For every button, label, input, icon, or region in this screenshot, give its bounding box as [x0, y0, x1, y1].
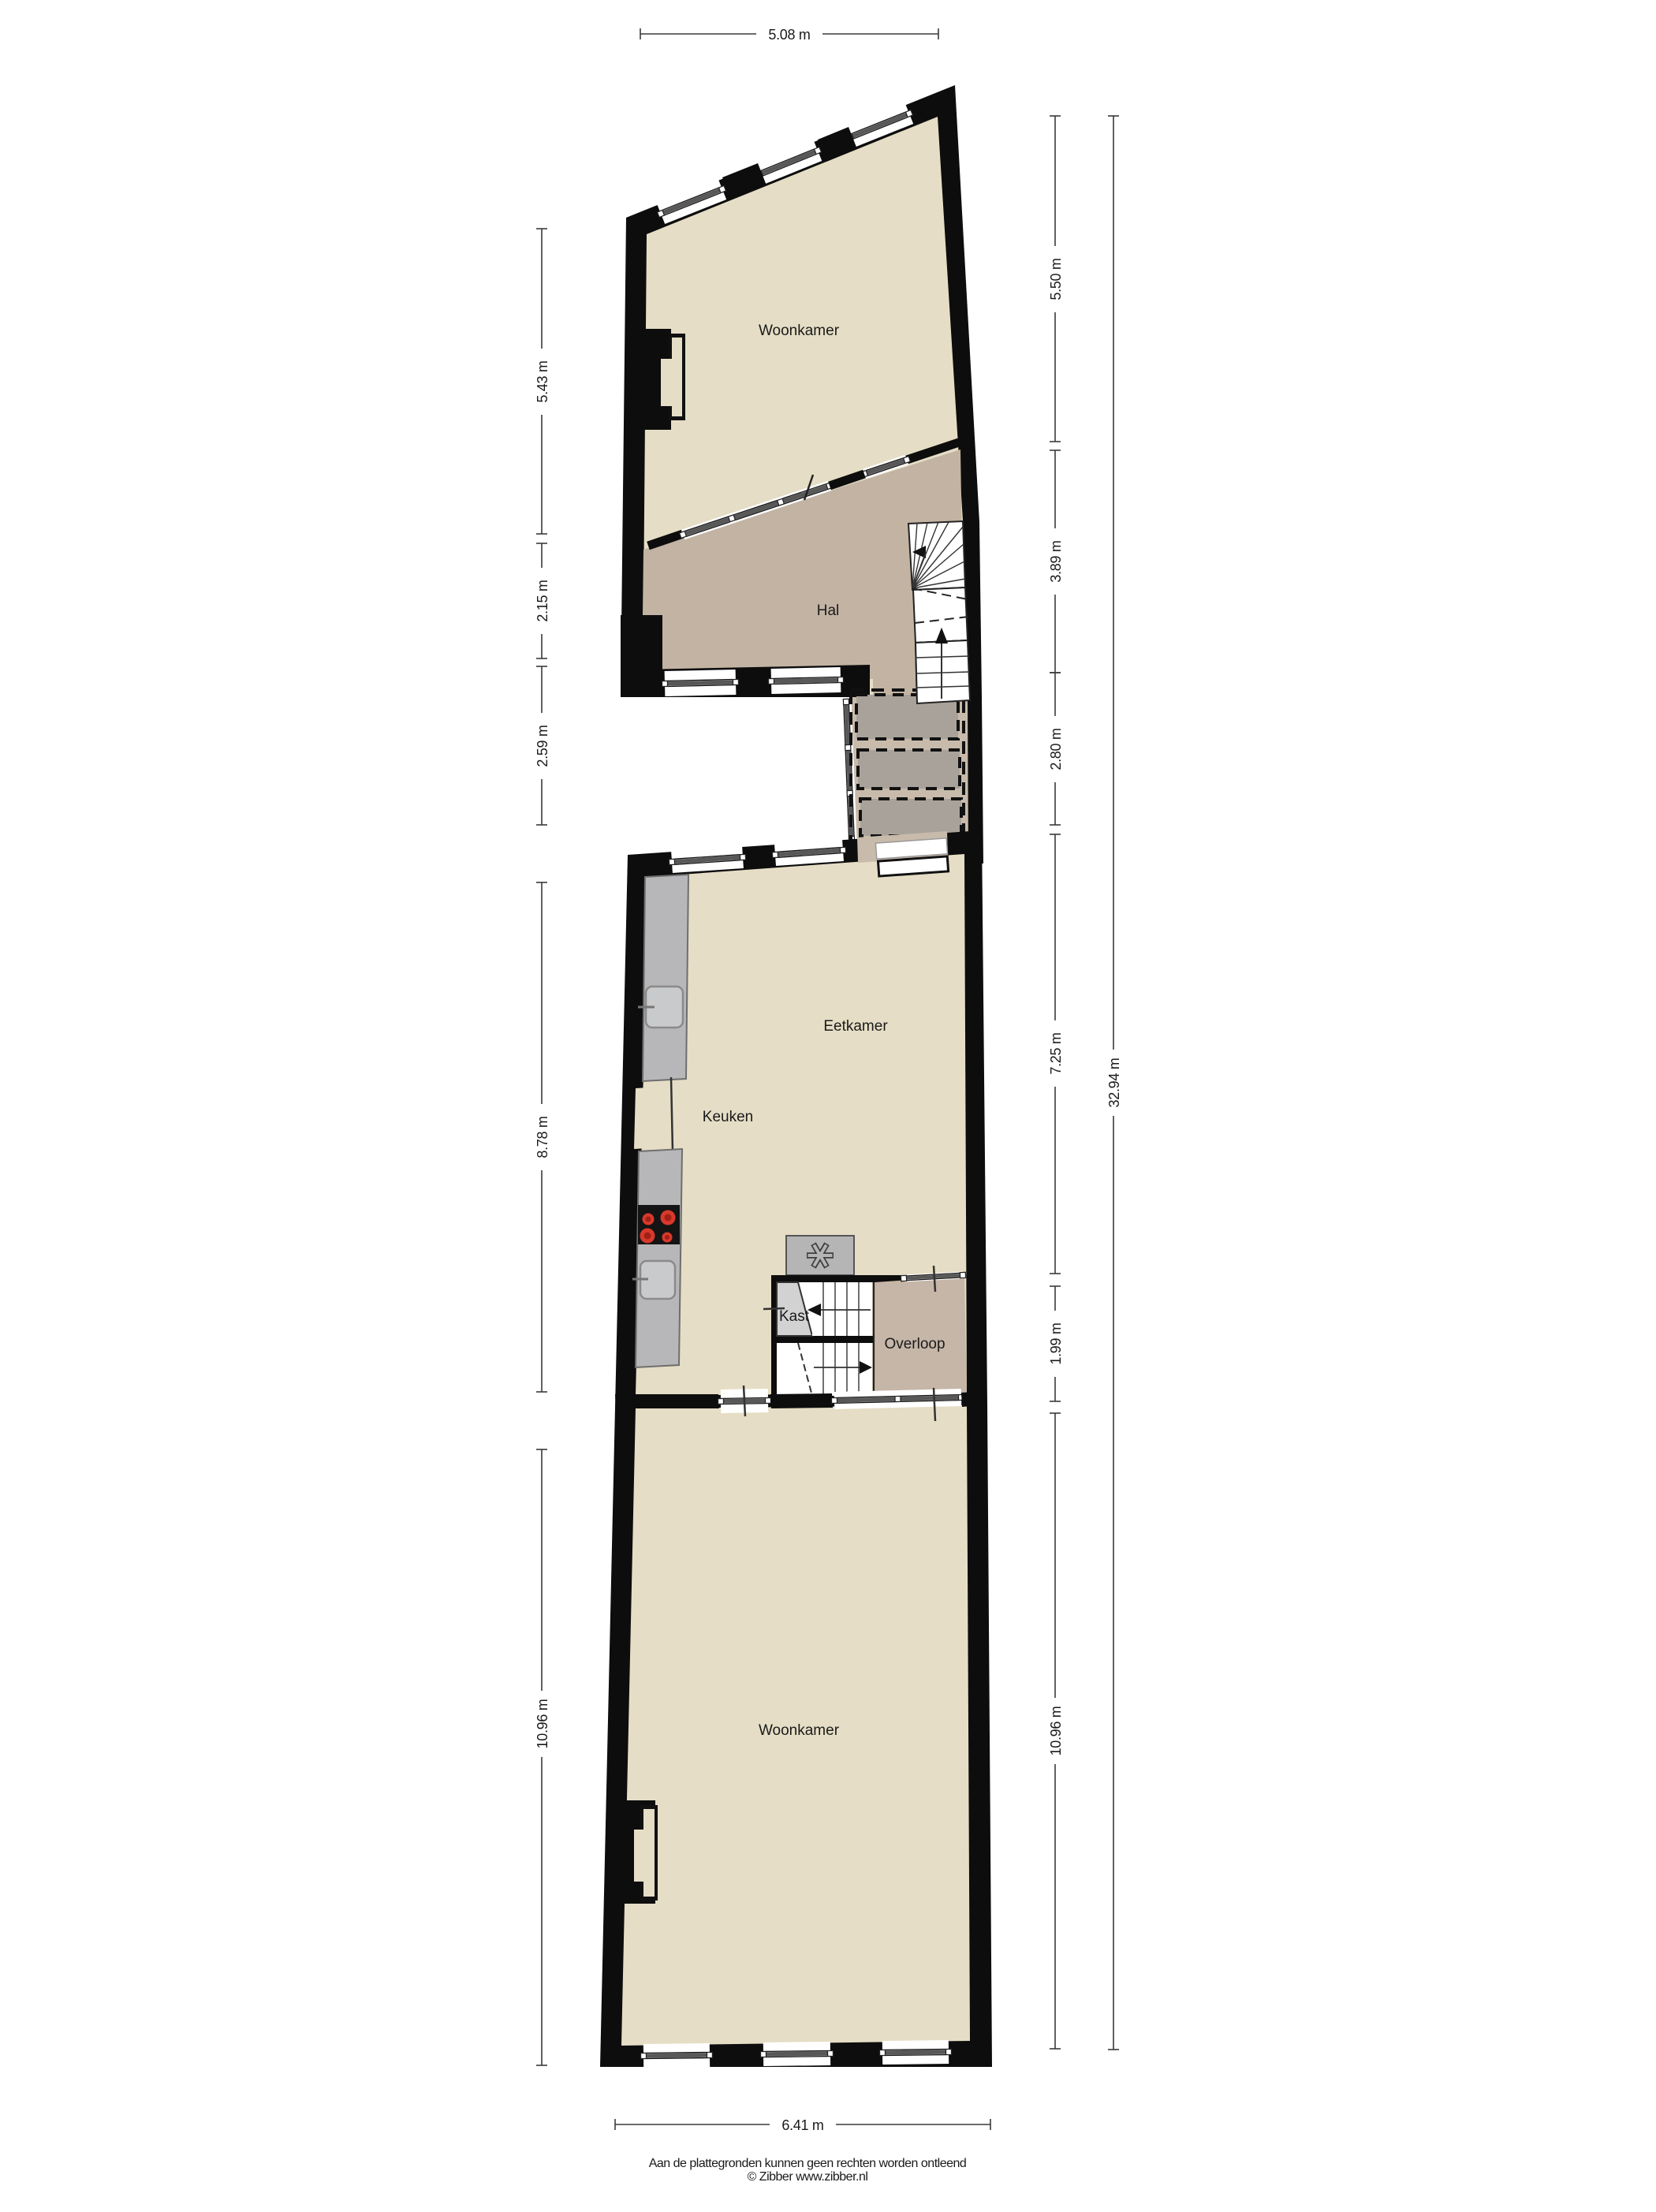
svg-text:5.43 m: 5.43 m	[535, 360, 550, 402]
svg-text:Eetkamer: Eetkamer	[823, 1018, 888, 1035]
svg-text:8.78 m: 8.78 m	[535, 1116, 550, 1158]
svg-text:Overloop: Overloop	[884, 1336, 945, 1352]
svg-text:6.41 m: 6.41 m	[781, 2117, 823, 2133]
svg-text:© Zibber www.zibber.nl: © Zibber www.zibber.nl	[748, 2170, 868, 2184]
svg-text:10.96 m: 10.96 m	[535, 1699, 550, 1749]
svg-text:Hal: Hal	[817, 602, 840, 619]
svg-text:Keuken: Keuken	[703, 1109, 753, 1125]
svg-text:5.08 m: 5.08 m	[768, 27, 810, 43]
svg-text:32.94 m: 32.94 m	[1106, 1058, 1122, 1108]
svg-text:2.59 m: 2.59 m	[535, 725, 550, 767]
svg-text:7.25 m: 7.25 m	[1048, 1032, 1064, 1074]
svg-text:10.96 m: 10.96 m	[1048, 1707, 1064, 1756]
svg-text:2.15 m: 2.15 m	[535, 580, 550, 621]
svg-text:Kast: Kast	[779, 1308, 810, 1325]
svg-text:3.89 m: 3.89 m	[1048, 540, 1064, 582]
svg-text:Aan de plattegronden kunnen ge: Aan de plattegronden kunnen geen rechten…	[649, 2157, 967, 2170]
svg-text:1.99 m: 1.99 m	[1048, 1322, 1064, 1364]
svg-text:Woonkamer: Woonkamer	[759, 323, 840, 339]
svg-text:2.80 m: 2.80 m	[1048, 728, 1064, 770]
svg-text:Woonkamer: Woonkamer	[759, 1722, 840, 1739]
svg-text:5.50 m: 5.50 m	[1048, 258, 1064, 300]
